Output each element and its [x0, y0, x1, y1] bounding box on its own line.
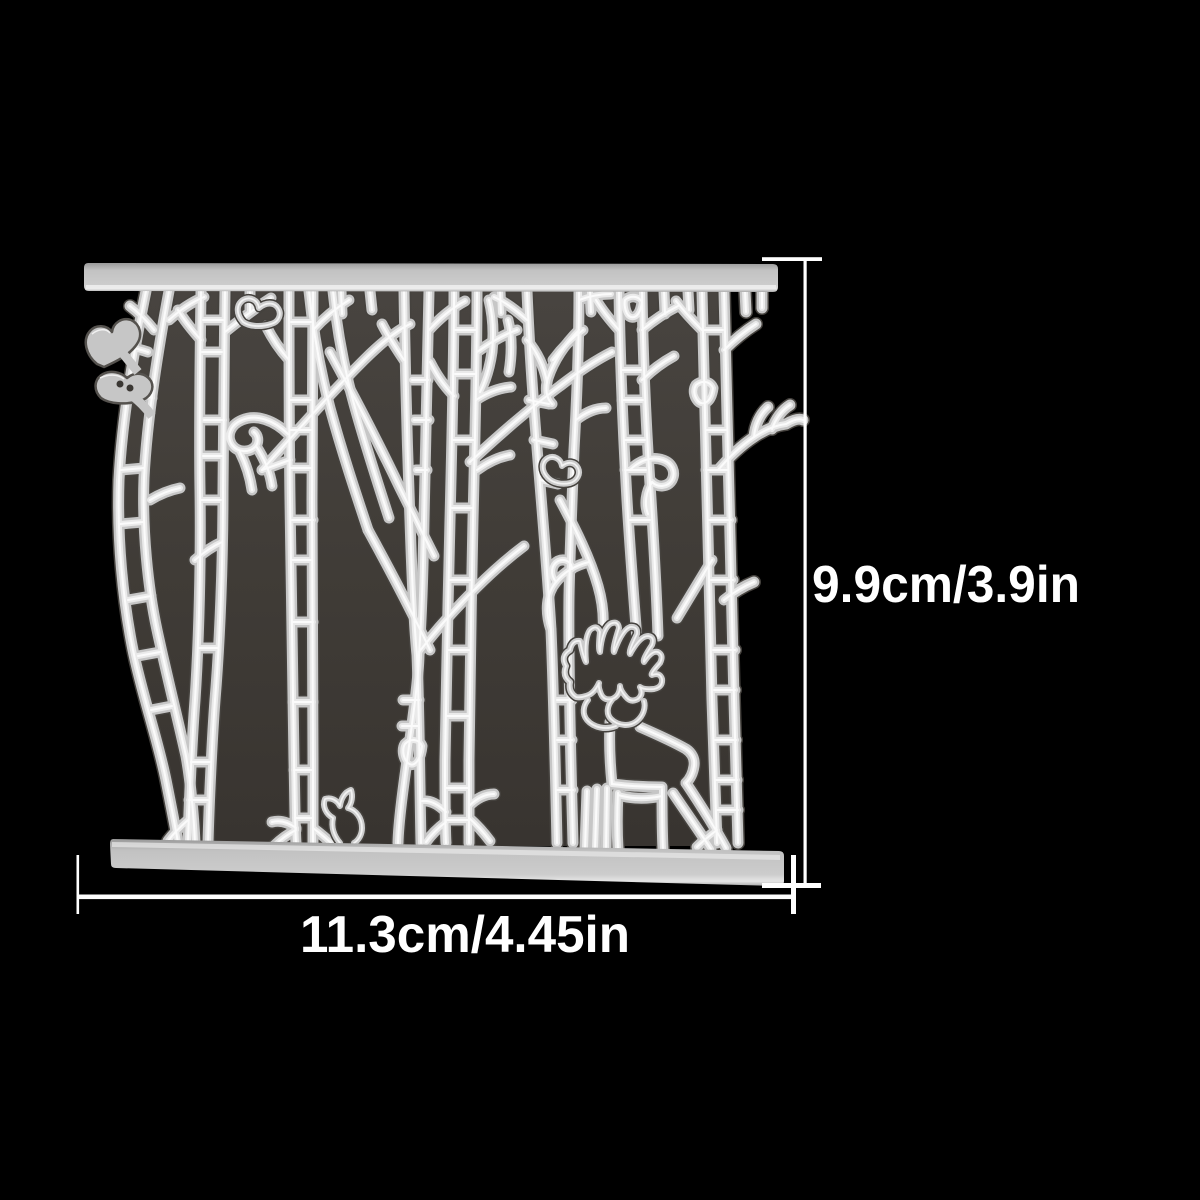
svg-text:9.9cm/3.9in: 9.9cm/3.9in — [812, 556, 1080, 614]
svg-text:11.3cm/4.45in: 11.3cm/4.45in — [300, 906, 630, 964]
